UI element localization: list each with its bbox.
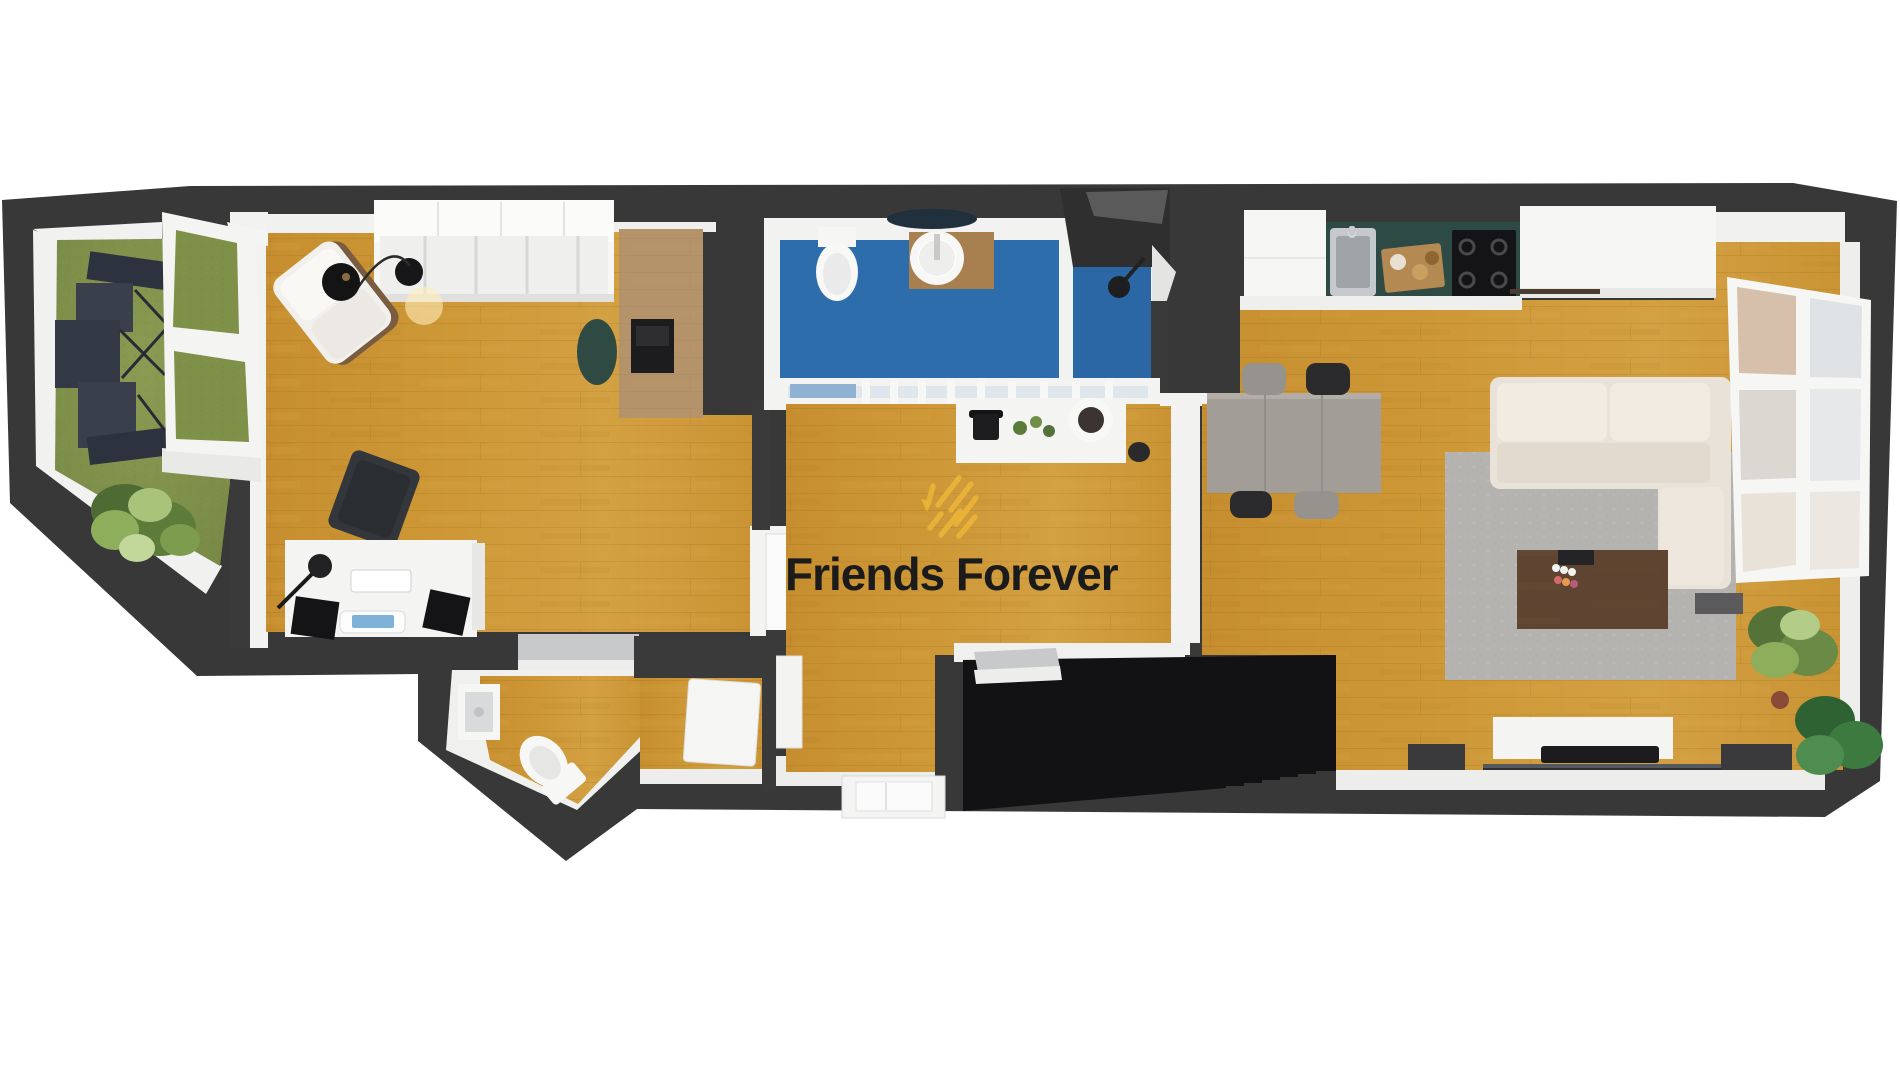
svg-text:Friends Forever: Friends Forever <box>785 548 1119 600</box>
